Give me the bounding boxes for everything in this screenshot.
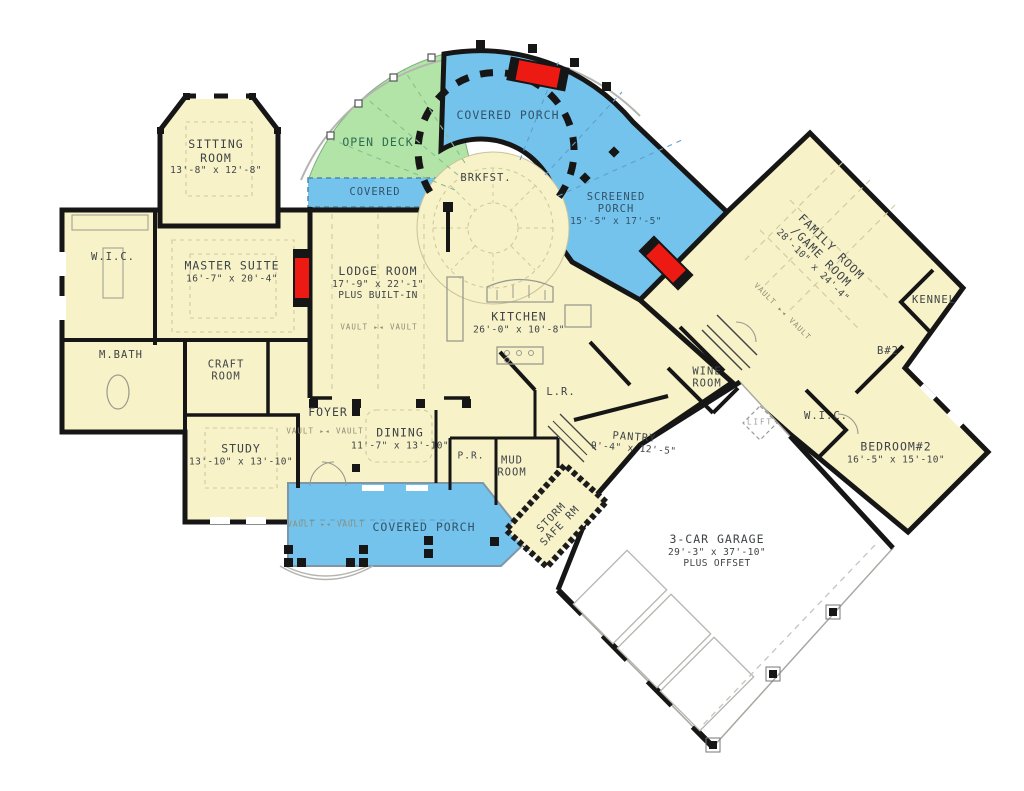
room-label-wine: WINE ROOM	[692, 366, 721, 391]
room-label-sitting: SITTING ROOM 13'-8" x 12'-8"	[170, 138, 262, 176]
room-label-covered-porch-bottom: COVERED PORCH	[372, 521, 475, 535]
room-label-garage: 3-CAR GARAGE 29'-3" x 37'-10" PLUS OFFSE…	[668, 533, 766, 569]
porch-steps	[280, 566, 373, 580]
room-label-mud: MUD ROOM	[497, 455, 526, 480]
room-label-covered-strip: COVERED	[349, 186, 400, 198]
vault-marker-icon: ▸◂	[319, 427, 330, 436]
room-label-lodge: LODGE ROOM 17'-9" x 22'-1" PLUS BUILT-IN	[332, 265, 424, 301]
vault-annotation-lodge: VAULT ▸◂ VAULT	[340, 324, 417, 333]
room-label-wic-right: W.I.C.	[804, 410, 848, 422]
room-label-kennel: KENNEL	[912, 294, 956, 306]
room-label-kitchen: KITCHEN 26'-0" x 10'-8"	[473, 311, 565, 336]
room-label-brkfst: BRKFST.	[460, 172, 511, 184]
room-label-lift: LIFT	[747, 419, 773, 428]
room-label-bath2: B#2	[877, 345, 899, 357]
room-label-craft: CRAFT ROOM	[208, 359, 245, 384]
room-label-wic-left: W.I.C.	[91, 251, 135, 263]
room-label-dining: DINING 11'-7" x 13'-10"	[351, 427, 449, 452]
vault-annotation-porch: VAULT ▸◂ VAULT	[287, 521, 364, 530]
room-label-study: STUDY 13'-10" x 13'-10"	[189, 443, 293, 468]
vault-marker-icon: ▸◂	[320, 520, 331, 529]
room-label-mbath: M.BATH	[99, 349, 143, 361]
room-label-laundry: L.R.	[546, 386, 575, 398]
room-label-powder: P.R.	[458, 450, 485, 461]
room-label-open-deck: OPEN DECK	[342, 136, 413, 150]
room-label-foyer: FOYER	[308, 406, 348, 420]
room-label-bedroom2: BEDROOM#2 16'-5" x 15'-10"	[847, 441, 945, 466]
floor-plan-page: SITTING ROOM 13'-8" x 12'-8" OPEN DECK C…	[0, 0, 1024, 791]
room-label-master: MASTER SUITE 16'-7" x 20'-4"	[184, 260, 279, 285]
vault-marker-icon: ▸◂	[373, 323, 384, 332]
room-label-covered-porch-top: COVERED PORCH	[456, 109, 559, 123]
room-label-screened-porch: SCREENED PORCH 15'-5" x 17'-5"	[570, 191, 662, 227]
